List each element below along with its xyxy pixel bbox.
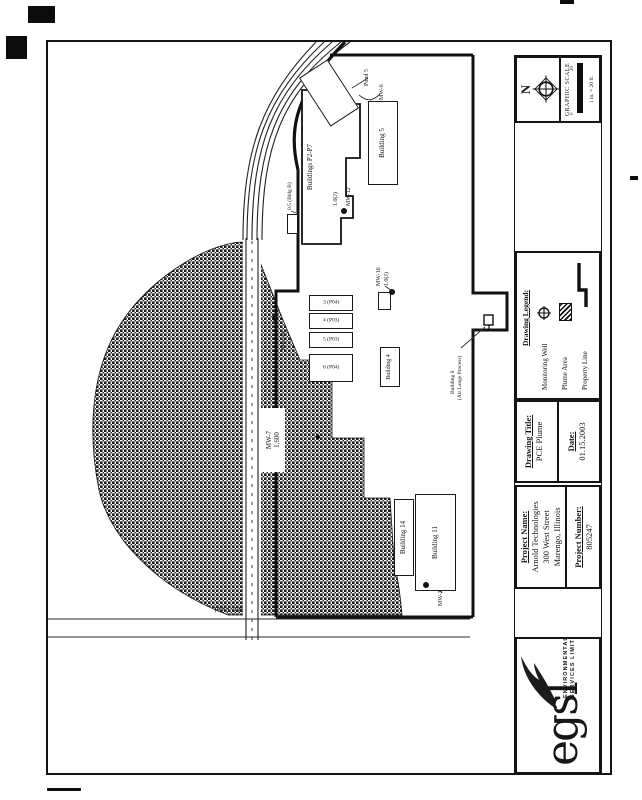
building-11: Building 11 (415, 494, 456, 591)
legend-panel: Drawing Legend: Monitoring Well Plume Ar… (515, 251, 601, 400)
drawing-title-cell: Drawing Title: PCE Plume (517, 402, 559, 481)
property-notch-symbol (484, 315, 493, 330)
legend-label-property-line: Property Line (581, 324, 589, 390)
feather-icon (519, 652, 559, 710)
monitoring-well-icon (537, 306, 551, 320)
compass-icon (531, 74, 561, 104)
plume-concentration-label: MW-7 1,600 (261, 408, 285, 472)
project-number-cell: Project Number: 805247 (569, 487, 601, 587)
small-building (378, 292, 391, 310)
project-panel: Project Name: Arnold Technologies 300 We… (515, 485, 601, 589)
tank-building: 5 (P03) (309, 332, 353, 348)
building8-callout-line1: Building 8 (450, 371, 456, 394)
drawing-canvas: Building 5 Building 4 Building 14 Buildi… (0, 0, 642, 800)
drawing-title-panel: Drawing Title: PCE Plume Date: 01.15.200… (515, 400, 601, 483)
scale-tick-right: 20 (570, 66, 575, 71)
scale-bar (577, 63, 583, 113)
road-label: Ritz Road (215, 605, 243, 613)
mw3-label: MW-3 (438, 590, 445, 606)
pond-callout: Pond 5 (364, 69, 371, 86)
legend-label-monitoring-well: Monitoring Well (541, 324, 549, 390)
monitoring-well-mw3 (423, 582, 429, 588)
building-14: Building 14 (394, 499, 414, 576)
building-4: Building 4 (380, 347, 400, 387)
monitoring-well (316, 435, 320, 439)
mw12-label: MW-12 (346, 187, 353, 206)
title-block: egsl ENVIRONMENTAL GROUP SERVICES LIMITE… (514, 55, 602, 775)
factory-label: Buildings P2-P7 (306, 100, 314, 234)
mw16-label: MW-16 (376, 267, 383, 286)
date-cell: Date: 01.15.2003 (561, 402, 601, 481)
logo-tagline: ENVIRONMENTAL GROUP SERVICES LIMITED (563, 637, 577, 698)
building-b (287, 214, 298, 234)
mw10-label: MW-10 (281, 331, 288, 350)
railroad-spur (243, 238, 261, 640)
mw12-value: 1.0(J) (333, 192, 340, 206)
building-5: Building 5 (368, 101, 398, 185)
monitoring-well-mw16 (389, 289, 395, 295)
project-name-cell: Project Name: Arnold Technologies 300 We… (517, 487, 567, 587)
monitoring-well-mw12 (341, 208, 347, 214)
scale-tick-left: 0 (570, 113, 575, 116)
legend-label-plume-area: Plume Area (561, 324, 569, 390)
legend-heading: Drawing Legend: (521, 290, 530, 346)
tank-building: 6 (P04) (309, 354, 353, 382)
building-b-label: 0.5 (Bldg B) (287, 182, 293, 210)
mw6-label: MW-6 (379, 84, 386, 100)
north-scale-panel: N GRAPHIC SCALE 0 20 1 in. = 20 ft. (515, 56, 601, 123)
tank-building: 3 (P04) (309, 295, 353, 311)
monitoring-well-mw10 (272, 315, 278, 321)
scanned-site-plan-page: Building 5 Building 4 Building 14 Buildi… (0, 0, 642, 800)
logo-panel: egsl ENVIRONMENTAL GROUP SERVICES LIMITE… (515, 637, 601, 774)
north-arrow-cell: N (517, 58, 561, 121)
building8-callout-line2: (Air Lange Process) (457, 356, 463, 400)
graphic-scale-cell: GRAPHIC SCALE 0 20 1 in. = 20 ft. (563, 58, 601, 121)
mw16-value: 1.0(J) (384, 272, 391, 286)
scale-note: 1 in. = 20 ft. (589, 58, 595, 121)
plume-area-icon (559, 303, 572, 321)
tank-building: 4 (P03) (309, 313, 353, 329)
property-line-icon (575, 262, 589, 308)
